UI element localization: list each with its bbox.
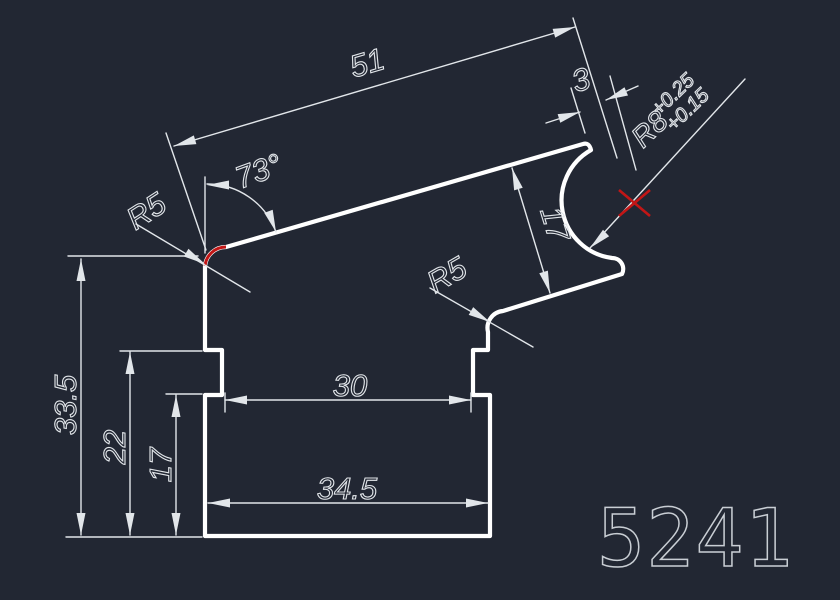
- dim-fillet-top-left: R5: [120, 185, 250, 292]
- dim-label-r5-right: R5: [421, 249, 473, 300]
- arrowhead: [539, 271, 554, 295]
- dim-label-34-5: 34.5: [317, 471, 378, 506]
- dim-shoulder-height: 22: [97, 351, 202, 535]
- fillet-highlight-arc: [205, 247, 226, 266]
- dim-label-r5-top: R5: [120, 185, 173, 236]
- arrowhead: [449, 396, 471, 405]
- dim-neck-width: 30: [225, 368, 471, 412]
- arrowhead: [225, 396, 247, 405]
- arrowhead: [77, 259, 86, 281]
- cad-drawing-canvas: 51 3 73° R5 R8 +0.25 +0.15 17: [0, 0, 840, 600]
- arrowhead: [207, 181, 229, 190]
- dim-label-33-5: 33.5: [48, 374, 83, 435]
- dim-corner-angle: 73°: [205, 147, 286, 253]
- arrowhead: [208, 499, 230, 508]
- dim-base-width: 34.5: [208, 471, 488, 506]
- arrowhead: [466, 499, 488, 508]
- arrowhead: [77, 513, 86, 535]
- extension-line: [166, 133, 206, 250]
- part-number: 5241: [597, 492, 794, 585]
- arrowhead: [553, 23, 577, 38]
- dim-total-height: 33.5: [48, 256, 202, 537]
- dim-label-17-slant: 17: [533, 202, 577, 247]
- dim-label-17-left: 17: [143, 446, 178, 482]
- dim-label-22: 22: [97, 430, 132, 465]
- dim-label-73: 73°: [230, 147, 286, 196]
- part-profile: [205, 144, 623, 536]
- dim-label-r8-group: R8 +0.25 +0.15: [623, 69, 714, 159]
- profile-outline: [205, 144, 623, 536]
- arrowhead: [126, 352, 135, 374]
- arc-center-mark: [619, 190, 650, 216]
- arrowhead: [604, 87, 628, 104]
- arrowhead: [126, 513, 135, 535]
- dim-label-51: 51: [346, 41, 389, 84]
- dim-label-30: 30: [333, 368, 367, 403]
- arrowhead: [172, 395, 181, 417]
- arrowhead: [173, 135, 197, 150]
- dim-label-3: 3: [568, 61, 595, 100]
- arrowhead: [172, 513, 181, 535]
- cad-drawing: 51 3 73° R5 R8 +0.25 +0.15 17: [0, 0, 840, 600]
- dim-fillet-right: R5: [421, 249, 533, 347]
- arrowhead: [508, 167, 523, 191]
